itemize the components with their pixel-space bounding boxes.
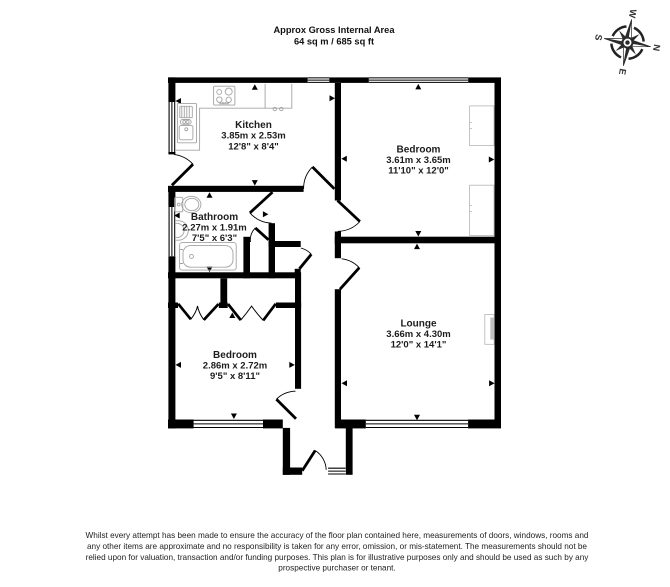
- svg-text:prospective purchaser or tenan: prospective purchaser or tenant.: [278, 564, 395, 573]
- svg-text:64 sq m / 685 sq ft: 64 sq m / 685 sq ft: [294, 37, 374, 47]
- svg-text:relied upon for valuation, tra: relied upon for valuation, transaction a…: [86, 553, 590, 562]
- svg-text:12'0" x 14'1": 12'0" x 14'1": [391, 340, 447, 351]
- svg-text:3.85m x 2.53m: 3.85m x 2.53m: [221, 131, 285, 142]
- svg-text:12'8" x 8'4": 12'8" x 8'4": [228, 141, 279, 152]
- svg-text:Approx Gross Internal Area: Approx Gross Internal Area: [273, 25, 395, 35]
- svg-text:Lounge: Lounge: [400, 319, 437, 330]
- svg-text:9'5" x 8'11": 9'5" x 8'11": [210, 371, 260, 382]
- svg-text:Bathroom: Bathroom: [191, 212, 238, 223]
- svg-text:7'5" x 6'3": 7'5" x 6'3": [192, 233, 237, 244]
- svg-text:Kitchen: Kitchen: [235, 120, 272, 131]
- svg-text:Bedroom: Bedroom: [213, 350, 257, 361]
- svg-text:2.27m x 1.91m: 2.27m x 1.91m: [182, 222, 246, 233]
- svg-text:S: S: [593, 34, 604, 42]
- svg-text:W: W: [627, 8, 638, 19]
- svg-text:3.61m x 3.65m: 3.61m x 3.65m: [386, 155, 450, 166]
- svg-text:any other items are approximat: any other items are approximate and no r…: [87, 542, 587, 551]
- svg-text:Bedroom: Bedroom: [397, 145, 441, 156]
- svg-text:N: N: [651, 44, 662, 53]
- svg-text:E: E: [617, 68, 628, 76]
- svg-text:Whilst every attempt has been: Whilst every attempt has been made to en…: [86, 531, 589, 540]
- svg-text:11'10" x 12'0": 11'10" x 12'0": [388, 166, 449, 177]
- svg-text:3.66m x 4.30m: 3.66m x 4.30m: [386, 329, 450, 340]
- svg-text:2.86m x 2.72m: 2.86m x 2.72m: [203, 361, 267, 372]
